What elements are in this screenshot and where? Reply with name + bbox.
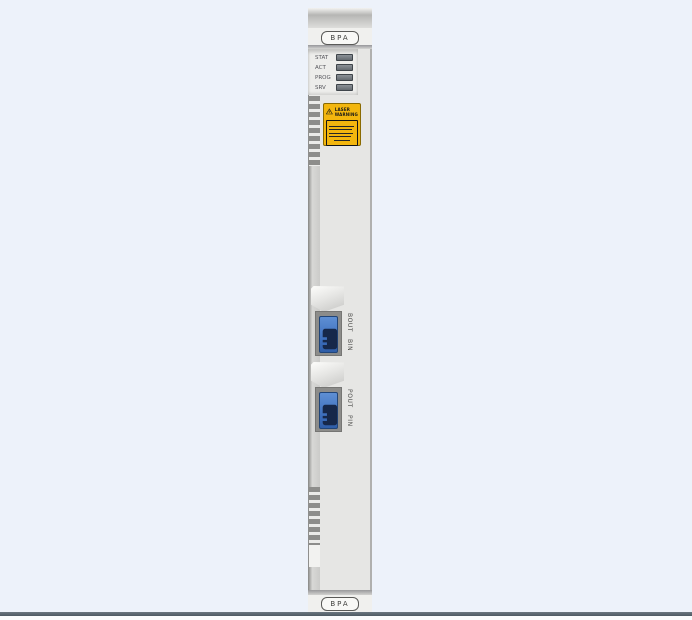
rail-bottom-highlight <box>309 545 320 567</box>
led-label-prog: PROG <box>315 74 331 80</box>
connector-dust-flap <box>311 362 344 388</box>
led-label-act: ACT <box>315 64 326 70</box>
port-label-p: POUTPIN <box>346 389 353 427</box>
fiber-connector-p <box>319 392 338 429</box>
below-shelf-highlight <box>0 616 692 620</box>
led-row-prog: PROG <box>308 74 358 81</box>
fiber-connector-b <box>319 316 338 353</box>
laser-warning-title: LASER WARNING <box>335 108 358 117</box>
port-label-b: BOUTBIN <box>346 313 353 351</box>
grip-ribs-top <box>309 88 320 166</box>
top-shading <box>308 8 372 28</box>
card-name-badge-bottom: BPA <box>321 597 359 611</box>
connector-module-p: POUTPIN <box>308 362 360 440</box>
led-row-stat: STAT <box>308 54 358 61</box>
act-led-indicator <box>336 64 353 71</box>
warning-triangle-icon <box>326 106 333 117</box>
fiber-connector-icon <box>321 403 338 427</box>
stat-led-indicator <box>336 54 353 61</box>
led-label-srv: SRV <box>315 84 326 90</box>
card-name-badge-top: BPA <box>321 31 359 45</box>
laser-warning-label: LASER WARNING <box>323 103 361 146</box>
connector-recess <box>315 311 342 356</box>
led-row-act: ACT <box>308 64 358 71</box>
led-panel: STAT ACT PROG SRV <box>308 49 358 95</box>
grip-ribs-bottom <box>309 487 320 545</box>
srv-led-indicator <box>336 84 353 91</box>
connector-dust-flap <box>311 286 344 312</box>
prog-led-indicator <box>336 74 353 81</box>
laser-warning-header: LASER WARNING <box>326 106 358 118</box>
led-row-srv: SRV <box>308 84 358 91</box>
scene: BPA STAT ACT PROG SRV <box>0 0 692 620</box>
bpa-card-faceplate: BPA STAT ACT PROG SRV <box>308 8 372 613</box>
fiber-connector-icon <box>321 327 338 351</box>
laser-warning-text-box <box>326 120 358 146</box>
connector-recess <box>315 387 342 432</box>
connector-module-b: BOUTBIN <box>308 286 360 364</box>
led-label-stat: STAT <box>315 54 328 60</box>
